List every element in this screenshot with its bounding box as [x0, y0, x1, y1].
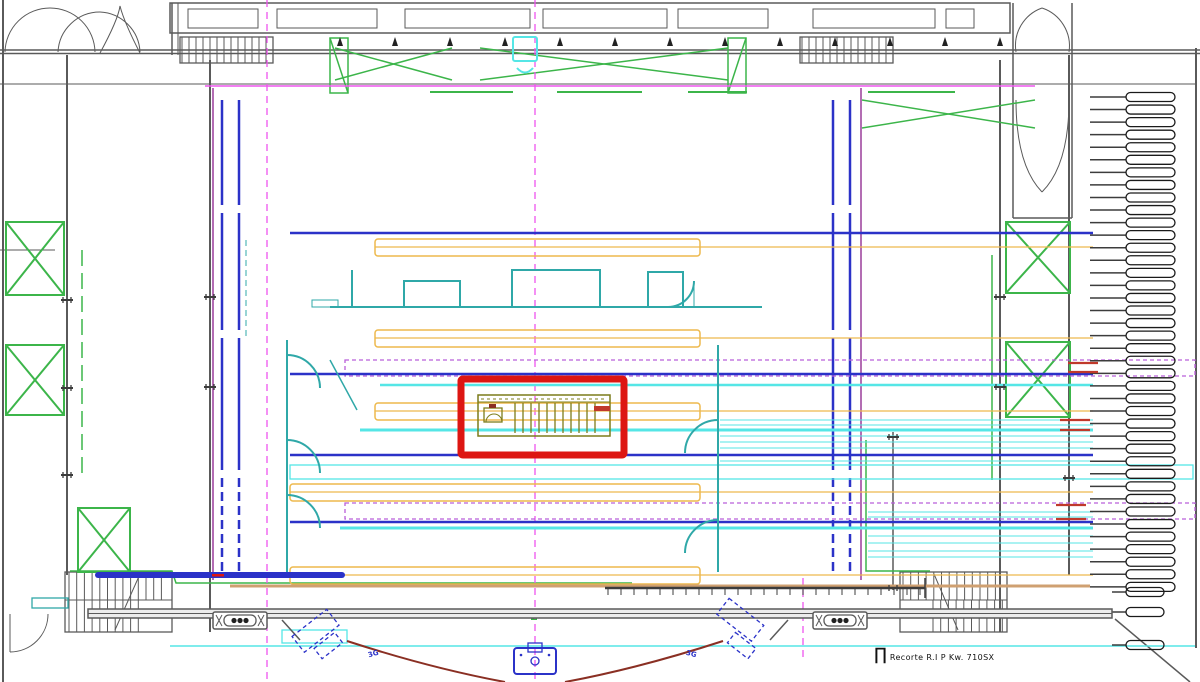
- rigging-panel: BarraBarraBarraBarraBarraBarraTela Media…: [1090, 93, 1200, 650]
- svg-text:Barra: Barra: [1182, 107, 1200, 114]
- svg-text:Barra: Barra: [1182, 346, 1200, 353]
- svg-text:Barra: Barra: [1182, 321, 1200, 328]
- truss-red-mark: [594, 406, 610, 411]
- set-structure: [32, 240, 762, 608]
- blue-lines: [95, 233, 1093, 578]
- svg-text:Barra: Barra: [1182, 559, 1200, 566]
- truss-group: [461, 379, 624, 455]
- cyan-line-cluster: [720, 420, 1093, 557]
- floorplan-drawing: B05B04B03B02B01B00B79B78B76B75B74B73B72B…: [0, 0, 1200, 682]
- yellow-battens: [290, 239, 1163, 584]
- highlight-box: [461, 379, 624, 455]
- drawing-annotation: ∏ Recorte R.I P Kw. 710SX: [874, 648, 994, 663]
- annotation-symbol: ∏: [874, 648, 887, 663]
- floor-pocket-right: [813, 612, 867, 629]
- console-icon: [514, 643, 556, 674]
- curtain-ticks: [337, 37, 1003, 46]
- svg-text:Barra: Barra: [1182, 446, 1200, 453]
- annotation-text: Recorte R.I P Kw. 710SX: [890, 653, 995, 663]
- green-structures: [6, 38, 1070, 620]
- cable-tray: [605, 578, 925, 598]
- floor-pocket-left: [213, 612, 267, 629]
- speaker-right: [707, 598, 770, 658]
- cad-floorplan: B05B04B03B02B01B00B79B78B76B75B74B73B72B…: [0, 0, 1200, 682]
- stage-edge-pit: [88, 598, 1112, 682]
